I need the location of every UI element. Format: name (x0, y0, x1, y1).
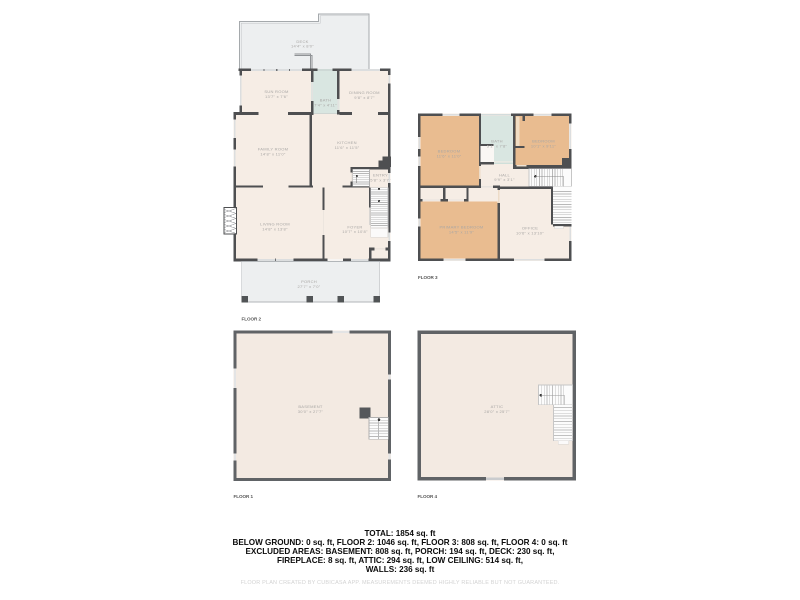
svg-text:11'6" x 11'0": 11'6" x 11'0" (437, 153, 462, 158)
svg-text:10'7" x 10'8": 10'7" x 10'8" (342, 229, 368, 234)
svg-text:10'1" x 9'11": 10'1" x 9'11" (531, 144, 556, 149)
svg-text:28'0" x 25'7": 28'0" x 25'7" (484, 409, 510, 414)
svg-text:30'0" x 27'7": 30'0" x 27'7" (298, 409, 324, 414)
svg-text:14'4" x 8'0": 14'4" x 8'0" (291, 43, 314, 48)
svg-text:FLOOR 2: FLOOR 2 (242, 317, 262, 322)
svg-text:14'8" x 11'0": 14'8" x 11'0" (260, 151, 285, 156)
svg-text:11'6" x 11'5": 11'6" x 11'5" (335, 145, 360, 150)
svg-text:13'7" x 7'6": 13'7" x 7'6" (265, 94, 288, 99)
svg-text:FLOOR 3: FLOOR 3 (418, 275, 438, 280)
svg-text:27'7" x 7'0": 27'7" x 7'0" (298, 284, 321, 289)
svg-text:7'4" x 4'11": 7'4" x 4'11" (314, 102, 337, 107)
svg-text:5'8" x 3'7": 5'8" x 3'7" (370, 177, 391, 182)
svg-text:FLOOR 1: FLOOR 1 (234, 494, 254, 499)
svg-text:10'6" x 13'10": 10'6" x 13'10" (516, 230, 544, 235)
svg-text:9'9" x 3'1": 9'9" x 3'1" (494, 177, 515, 182)
svg-text:FLOOR 4: FLOOR 4 (418, 494, 438, 499)
svg-text:5'1" x 7'8": 5'1" x 7'8" (487, 144, 508, 149)
svg-text:14'8" x 13'8": 14'8" x 13'8" (262, 227, 288, 232)
svg-text:9'8" x 8'7": 9'8" x 8'7" (354, 95, 375, 100)
svg-text:14'5" x 11'9": 14'5" x 11'9" (449, 229, 474, 234)
